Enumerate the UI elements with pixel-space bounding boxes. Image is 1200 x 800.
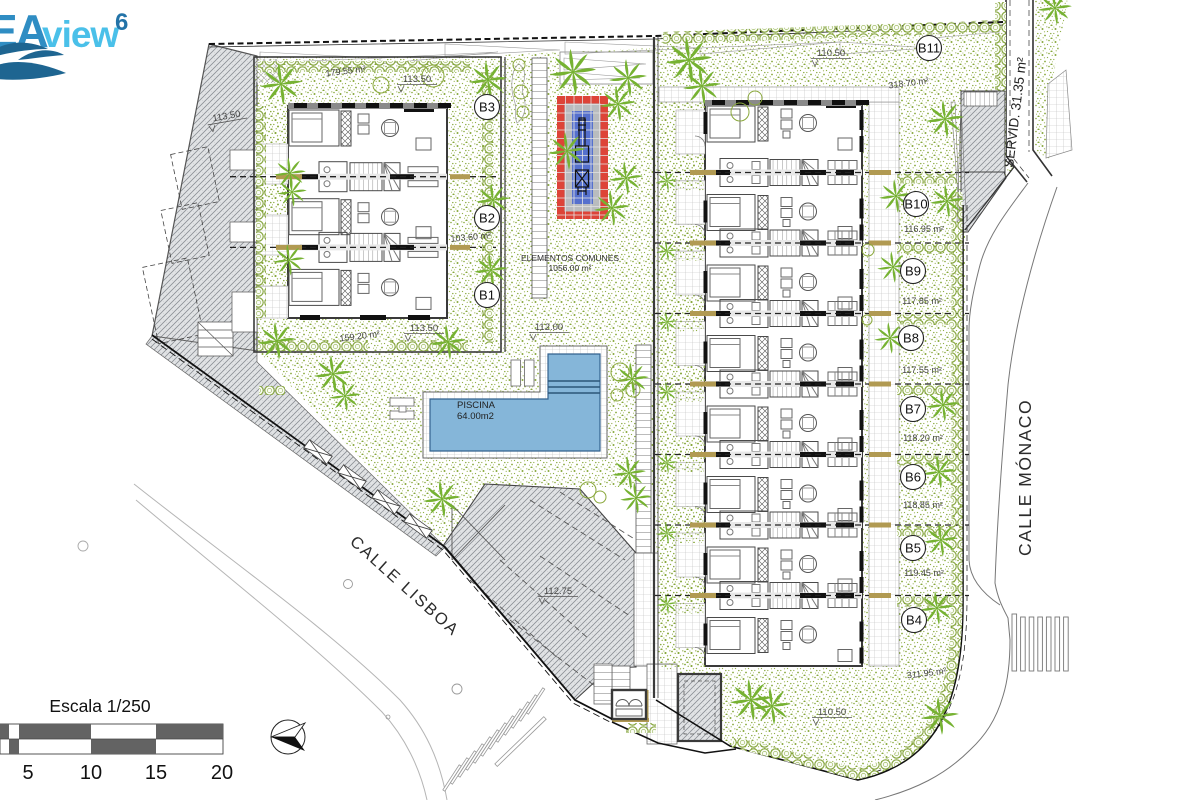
svg-text:116.95 m²: 116.95 m² [904,224,944,234]
svg-text:ELEMENTOS COMUNES: ELEMENTOS COMUNES [521,253,619,263]
svg-text:B5: B5 [905,541,921,556]
svg-text:5: 5 [22,762,33,784]
svg-text:112.00: 112.00 [535,322,563,333]
svg-text:118.20 m²: 118.20 m² [903,433,943,443]
svg-text:112.75: 112.75 [544,586,572,597]
svg-text:CALLE MÓNACO: CALLE MÓNACO [1014,399,1035,556]
svg-text:20: 20 [211,762,233,784]
svg-text:113.50: 113.50 [403,74,431,85]
svg-text:B11: B11 [918,41,940,56]
svg-text:117.55 m²: 117.55 m² [902,365,942,375]
svg-text:Escala 1/250: Escala 1/250 [49,696,150,716]
svg-text:B6: B6 [905,470,921,485]
svg-text:view: view [42,14,119,55]
svg-text:B10: B10 [904,197,927,212]
svg-text:B1: B1 [479,288,495,303]
svg-text:110.50: 110.50 [817,48,845,59]
svg-text:10: 10 [80,762,102,784]
svg-text:117.85 m²: 117.85 m² [902,296,942,306]
svg-text:6: 6 [115,9,128,36]
svg-text:113.50: 113.50 [410,323,438,334]
svg-text:119.45 m²: 119.45 m² [904,568,944,578]
svg-text:118.85 m²: 118.85 m² [903,500,943,510]
svg-text:B9: B9 [905,264,921,279]
svg-text:15: 15 [145,762,167,784]
svg-text:B2: B2 [479,211,495,226]
svg-text:110.50: 110.50 [818,707,846,718]
svg-text:64.00m2: 64.00m2 [457,411,494,422]
svg-text:B8: B8 [903,331,919,346]
svg-text:1056.00 m²: 1056.00 m² [549,263,592,273]
svg-text:B3: B3 [479,100,495,115]
svg-text:PISCINA: PISCINA [457,400,496,411]
svg-text:B7: B7 [905,402,921,417]
svg-text:B4: B4 [906,613,922,628]
